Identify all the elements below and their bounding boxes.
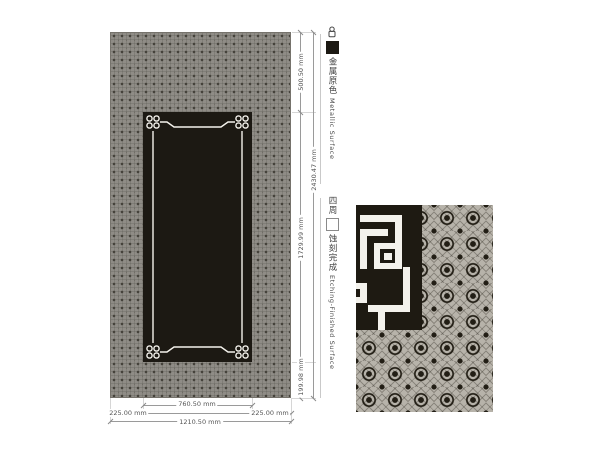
metallic-label-cn: 金属原色	[327, 57, 337, 95]
label-leader-line-metallic	[320, 34, 321, 184]
fret-corner-detail	[356, 205, 422, 330]
dim-height-bottom: 199.98 mm	[297, 356, 305, 397]
dim-width-right: 225.00 mm	[249, 409, 290, 417]
main-panel	[110, 32, 291, 398]
decorative-frame	[143, 112, 252, 362]
etching-label-prefix: 四周	[327, 196, 337, 215]
label-etching-surface: 四周 蚀刻完成 Etching-Finished Surface	[324, 196, 340, 370]
knot-bottom-left	[147, 346, 159, 358]
metallic-surface-swatch-icon	[326, 41, 339, 54]
dim-width-left: 225.00 mm	[107, 409, 148, 417]
ornament-marker-icon	[327, 26, 337, 38]
dim-height-inner: 1729.99 mm	[297, 215, 305, 261]
etching-label-cn: 蚀刻完成	[327, 234, 337, 272]
dim-height-top: 500.50 mm	[297, 51, 305, 92]
knot-top-left	[147, 116, 159, 128]
dim-line-height-total	[313, 32, 314, 398]
dim-width-inner: 760.50 mm	[176, 400, 217, 408]
label-leader-line-etching	[320, 198, 321, 398]
dim-height-total: 2430.47 mm	[310, 147, 318, 193]
knot-top-right	[236, 116, 248, 128]
dim-width-total: 1210.50 mm	[177, 418, 223, 426]
etched-center-area	[143, 112, 252, 362]
knot-bottom-right	[236, 346, 248, 358]
etched-surface-swatch-icon	[326, 218, 339, 231]
label-metallic-surface: 金属原色 Metallic Surface	[324, 26, 340, 160]
metallic-label-en: Metallic Surface	[328, 98, 336, 160]
detail-panel	[356, 205, 493, 412]
etching-label-en: Etching-Finished Surface	[328, 275, 336, 370]
